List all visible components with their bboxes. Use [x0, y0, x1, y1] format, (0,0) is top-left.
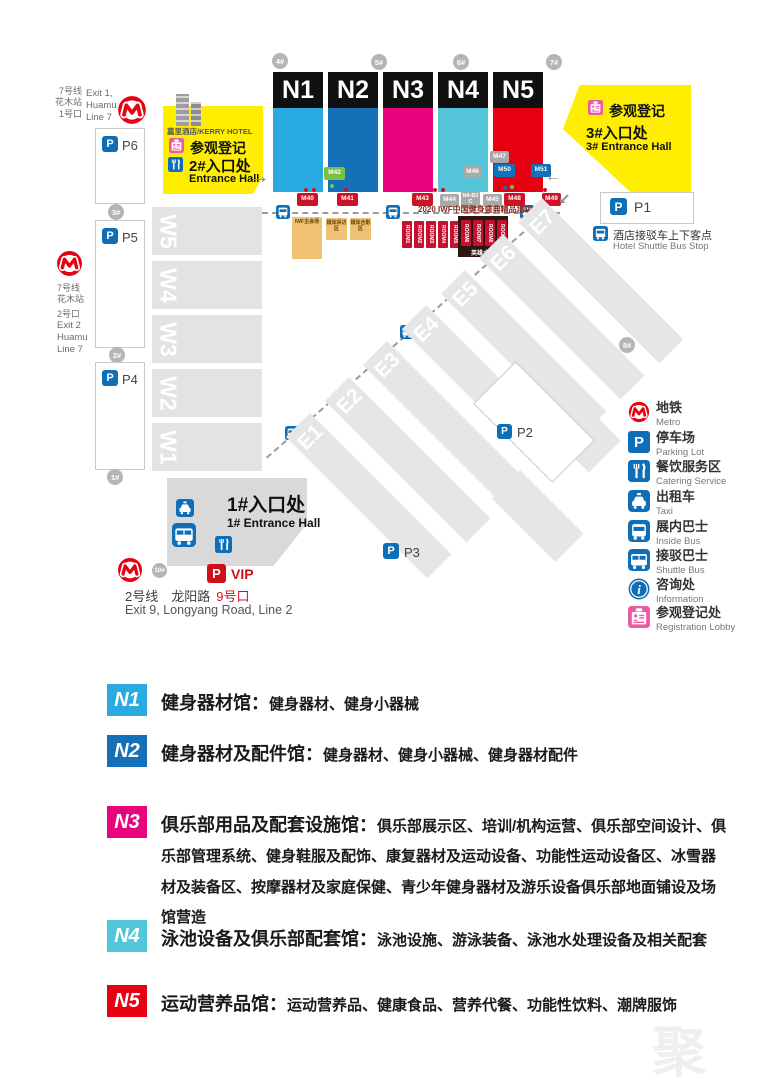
- hall-n2-badge: N2: [107, 735, 147, 767]
- training-room: ROOM1: [402, 221, 412, 248]
- hall-n3-body: [383, 108, 433, 192]
- metro-line2-en: Exit 9, Longyang Road, Line 2: [125, 603, 292, 617]
- hall-e5-label: E5: [444, 274, 486, 316]
- hall-n1-header: N1: [273, 72, 323, 108]
- shuttle-bus-icon: [628, 549, 650, 571]
- hall-w2: W2: [152, 369, 262, 417]
- parking-icon: P: [628, 431, 650, 453]
- booth-m47: M47: [490, 151, 509, 163]
- entrance-1-en: 1# Entrance Hall: [227, 516, 320, 530]
- hall-w5-label: W5: [155, 209, 182, 253]
- hall-n3-badge: N3: [107, 806, 147, 838]
- hall-n4-badge: N4: [107, 920, 147, 952]
- parking-icon: P: [497, 424, 512, 439]
- catering-icon: [215, 536, 232, 553]
- hall-e4-label: E4: [405, 309, 447, 351]
- hall-n2-label: N2: [337, 76, 369, 105]
- booth-dot: [312, 188, 316, 192]
- metro-icon: [56, 250, 83, 277]
- watermark: 聚展: [652, 1008, 769, 1080]
- parking-icon: P: [102, 136, 118, 152]
- hotel-building-icon: [176, 94, 189, 126]
- hall-n3-header: N3: [383, 72, 433, 108]
- meeting-room-1: 媒体采访区: [326, 218, 347, 240]
- taxi-icon: [176, 499, 194, 517]
- metro-icon: [117, 95, 147, 125]
- catering-icon: [628, 460, 650, 482]
- gate-1: 1#: [107, 469, 123, 485]
- booth-dot: [330, 184, 334, 188]
- registration-icon: [588, 100, 603, 115]
- gate-10: 10#: [152, 563, 167, 578]
- metro-exit1-en: Exit 1, Huamu Line 7: [86, 88, 117, 124]
- hall-n3-label: N3: [392, 76, 424, 105]
- parking-icon: P: [610, 198, 627, 215]
- metro-icon: [117, 557, 143, 583]
- metro-exit2-cn: 7号线 花木站 2号口: [57, 283, 84, 320]
- shuttle-bus-icon: [593, 226, 608, 241]
- legend-item-metro: 地铁Metro: [628, 401, 682, 428]
- parking-p4-label: P4: [122, 372, 138, 387]
- hall-e3-label: E3: [366, 345, 408, 387]
- catering-icon: [168, 157, 183, 172]
- legend-item-registration: 参观登记处Registration Lobby: [628, 606, 735, 633]
- hall-n4-label: N4: [447, 76, 479, 105]
- metro-exit2-en: Exit 2 Huamu Line 7: [57, 320, 88, 356]
- booth-m40: M40: [297, 193, 318, 206]
- hotel-shuttle-stop-en: Hotel Shuttle Bus Stop: [613, 241, 709, 252]
- hotel-building-icon: [191, 102, 201, 126]
- booth-m41: M41: [337, 193, 358, 206]
- exhibition-venue-map: 4# 5# 6# 7# N1 N2 N3 N4 N5 M40 M41 M42 M…: [0, 0, 769, 1080]
- hall-n1-badge: N1: [107, 684, 147, 716]
- hall-n5-label: N5: [502, 76, 534, 105]
- booth-m50: M50: [494, 164, 515, 177]
- hall-w2-label: W2: [155, 371, 182, 415]
- guide-desc: 泳池设施、游泳装备、泳池水处理设备及相关配套: [377, 932, 707, 949]
- legend-item-catering: 餐饮服务区Catering Service: [628, 460, 726, 487]
- training-room: ROOM7: [473, 220, 483, 246]
- gate-5: 5#: [371, 54, 387, 70]
- gate-8: 8#: [619, 337, 635, 353]
- hall-w3: W3: [152, 315, 262, 363]
- training-room: ROOM6: [461, 220, 471, 246]
- parking-p5-label: P5: [122, 230, 138, 245]
- entrance-3-title: 3#入口处: [586, 122, 648, 143]
- hall-n5-header: N5: [493, 72, 543, 108]
- guide-desc: 健身器材、健身小器械、健身器材配件: [323, 747, 578, 764]
- booth-dot: [510, 185, 514, 189]
- inside-bus-icon: [276, 205, 290, 219]
- arrow-down-left-icon: ↙: [558, 190, 571, 208]
- hall-n1-body: [273, 108, 323, 192]
- inside-bus-icon: [628, 520, 650, 542]
- booth-dot: [536, 188, 540, 192]
- legend-item-taxi: 出租车Taxi: [628, 490, 695, 517]
- parking-icon: P: [383, 543, 399, 559]
- registration-icon: [628, 606, 650, 628]
- metro-icon: [628, 401, 650, 423]
- hall-w5: W5: [152, 207, 262, 255]
- legend-item-inside-bus: 展内巴士Inside Bus: [628, 520, 708, 547]
- guide-title: 健身器材馆：: [161, 693, 269, 713]
- hall-w4-label: W4: [155, 263, 182, 307]
- booth-dot: [304, 188, 308, 192]
- guide-title: 俱乐部用品及配套设施馆：: [161, 815, 377, 835]
- legend-item-shuttle-bus: 接驳巴士Shuttle Bus: [628, 549, 708, 576]
- parking-icon: P: [102, 228, 118, 244]
- hall-guide-row-n3: N3 俱乐部用品及配套设施馆：俱乐部展示区、培训/机构运营、俱乐部空间设计、俱乐…: [107, 806, 732, 934]
- hall-w3-label: W3: [155, 317, 182, 361]
- hall-w1: W1: [152, 423, 262, 471]
- hall-e2-label: E2: [328, 381, 370, 423]
- hall-guide-row-n2: N2 健身器材及配件馆：健身器材、健身小器械、健身器材配件: [107, 735, 732, 771]
- booth-dot: [344, 188, 348, 192]
- entrance-3-registration: 参观登记: [609, 101, 665, 121]
- parking-p6-label: P6: [122, 138, 138, 153]
- hall-n4-body: [438, 108, 488, 192]
- hall-n5-body: [493, 108, 543, 192]
- parking-icon: P: [102, 370, 118, 386]
- vip-parking-icon: P: [207, 564, 226, 583]
- hotel-name: 嘉里酒店/KERRY HOTEL: [167, 126, 252, 137]
- booth-m46: M46: [463, 166, 482, 178]
- parking-p3-label: P3: [404, 545, 420, 560]
- metro-exit1-cn: 7号线 花木站 1号口: [54, 86, 82, 120]
- training-room: ROOM4: [438, 221, 448, 248]
- hall-n5-badge: N5: [107, 985, 147, 1017]
- training-room: ROOM3: [426, 221, 436, 248]
- hall-w1-label: W1: [155, 425, 182, 469]
- hall-e1-label: E1: [289, 417, 331, 459]
- hall-guide-row-n1: N1 健身器材馆：健身器材、健身小器械: [107, 684, 732, 720]
- gate-4: 4#: [272, 53, 288, 69]
- information-icon: [628, 578, 650, 600]
- entrance-1-title: 1#入口处: [227, 490, 305, 517]
- hall-n2-header: N2: [328, 72, 378, 108]
- shuttle-bus-icon: [172, 522, 196, 548]
- guide-desc: 运动营养品、健康食品、营养代餐、功能性饮料、潮牌服饰: [287, 997, 677, 1014]
- guide-title: 运动营养品馆：: [161, 994, 287, 1014]
- guide-desc: 健身器材、健身小器械: [269, 696, 419, 713]
- inside-bus-icon: [386, 205, 400, 219]
- hall-w4: W4: [152, 261, 262, 309]
- gate-2: 2#: [109, 347, 125, 363]
- hall-guide-row-n4: N4 泳池设备及俱乐部配套馆：泳池设施、游泳装备、泳池水处理设备及相关配套: [107, 920, 732, 956]
- hall-n4-header: N4: [438, 72, 488, 108]
- legend-item-information: 咨询处Information: [628, 578, 704, 605]
- registration-icon: [169, 138, 184, 153]
- gate-7: 7#: [546, 54, 562, 70]
- hall-n1-label: N1: [282, 76, 314, 105]
- metro-line2-exit: 9号口: [216, 589, 249, 604]
- meeting-room-main: IWF主会场: [292, 217, 322, 259]
- booth-dot: [543, 188, 547, 192]
- booth-m42: M42: [324, 167, 345, 180]
- booth-dot: [441, 188, 445, 192]
- venue-block: [492, 470, 584, 562]
- meeting-room-2: 媒体合影区: [350, 218, 371, 240]
- arrow-right-icon: →: [248, 163, 270, 189]
- vip-label: VIP: [231, 566, 254, 582]
- taxi-icon: [628, 490, 650, 512]
- gate-3: 3#: [108, 204, 124, 220]
- booth-dot: [503, 186, 507, 190]
- guide-title: 健身器材及配件馆：: [161, 744, 323, 764]
- booth-dot: [433, 188, 437, 192]
- entrance-3-en: 3# Entrance Hall: [586, 141, 672, 153]
- hall-guide-row-n5: N5 运动营养品馆：运动营养品、健康食品、营养代餐、功能性饮料、潮牌服饰: [107, 985, 732, 1021]
- legend-item-parking: P 停车场Parking Lot: [628, 431, 704, 458]
- arrow-left-icon: ←: [545, 168, 561, 186]
- guide-title: 泳池设备及俱乐部配套馆：: [161, 929, 377, 949]
- training-room: ROOM2: [414, 221, 424, 248]
- parking-p2-label: P2: [517, 425, 533, 440]
- gate-6: 6#: [453, 54, 469, 70]
- parking-p1-label: P1: [634, 199, 651, 215]
